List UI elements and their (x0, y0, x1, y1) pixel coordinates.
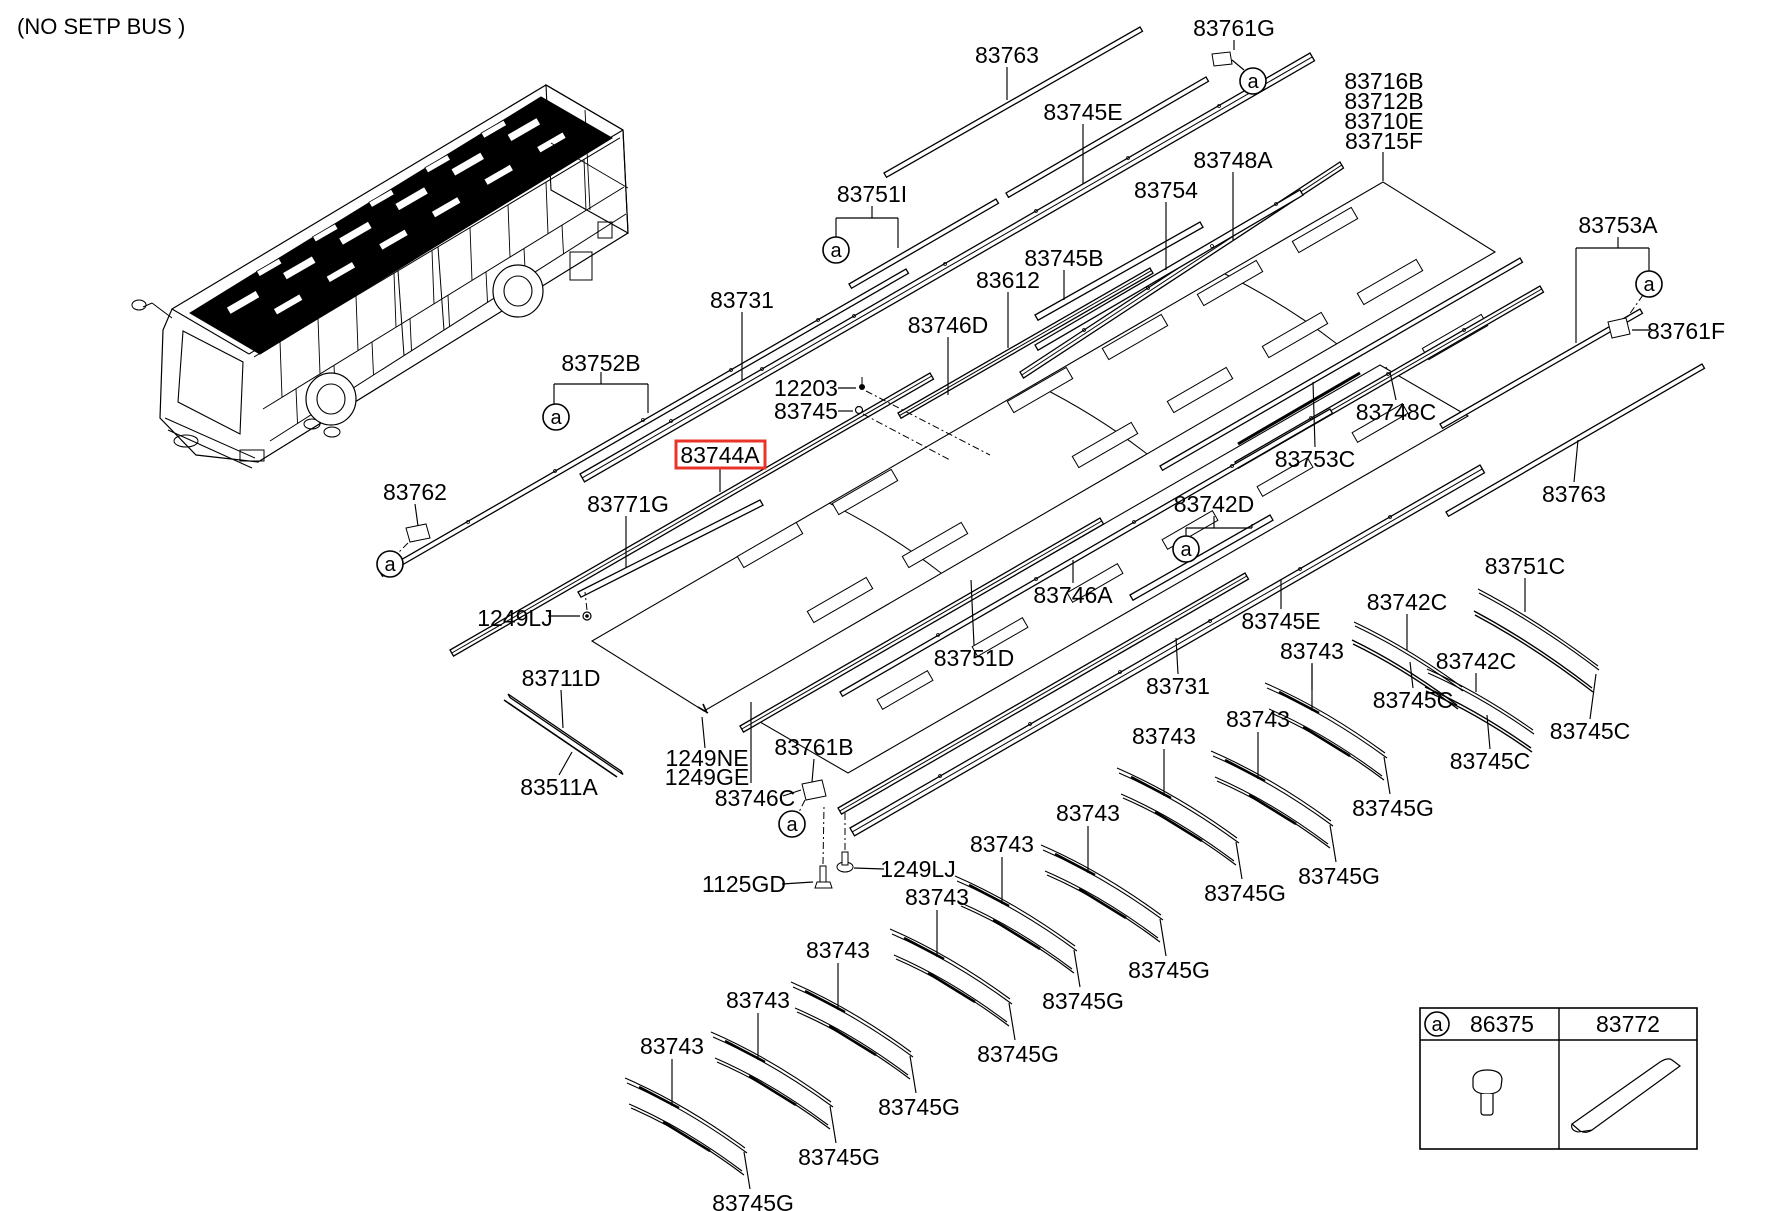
svg-text:83745C: 83745C (1373, 687, 1454, 713)
svg-text:83743: 83743 (970, 831, 1034, 857)
svg-text:83511A: 83511A (520, 774, 598, 800)
svg-text:83752B: 83752B (561, 350, 640, 376)
svg-text:a: a (1643, 274, 1655, 296)
svg-text:83745C: 83745C (1550, 718, 1631, 744)
svg-text:a: a (1180, 539, 1192, 561)
svg-text:a: a (384, 554, 396, 576)
svg-text:83731: 83731 (710, 287, 774, 313)
svg-text:83743: 83743 (640, 1033, 704, 1059)
svg-text:83745G: 83745G (1352, 795, 1434, 821)
svg-text:83771G: 83771G (587, 491, 669, 517)
svg-text:83746D: 83746D (908, 312, 989, 338)
svg-text:1249LJ: 1249LJ (477, 605, 552, 631)
svg-text:83743: 83743 (806, 937, 870, 963)
svg-text:83744A: 83744A (680, 442, 760, 468)
svg-text:83751D: 83751D (934, 645, 1015, 671)
svg-text:83731: 83731 (1146, 673, 1210, 699)
svg-text:a: a (786, 814, 798, 836)
svg-text:83745G: 83745G (798, 1144, 880, 1170)
svg-text:83751I: 83751I (837, 181, 907, 207)
svg-text:83762: 83762 (383, 479, 447, 505)
svg-text:83761G: 83761G (1193, 15, 1275, 41)
svg-text:83772: 83772 (1596, 1011, 1660, 1037)
svg-text:83743: 83743 (905, 884, 969, 910)
svg-text:83748C: 83748C (1356, 399, 1437, 425)
svg-text:83743: 83743 (1056, 800, 1120, 826)
svg-text:83746A: 83746A (1033, 582, 1113, 608)
svg-text:a: a (830, 240, 842, 262)
svg-text:1125GD: 1125GD (702, 871, 786, 897)
svg-text:1249LJ: 1249LJ (880, 856, 955, 882)
svg-text:83742C: 83742C (1436, 648, 1517, 674)
svg-text:83748A: 83748A (1193, 147, 1273, 173)
svg-text:83745G: 83745G (1128, 957, 1210, 983)
svg-text:86375: 86375 (1470, 1011, 1534, 1037)
svg-text:83745C: 83745C (1450, 748, 1531, 774)
svg-text:83763: 83763 (1542, 481, 1606, 507)
svg-text:83745G: 83745G (712, 1190, 794, 1211)
svg-text:a: a (1431, 1014, 1443, 1036)
svg-text:83715F: 83715F (1345, 128, 1423, 154)
svg-text:83763: 83763 (975, 42, 1039, 68)
svg-text:83745G: 83745G (1298, 863, 1380, 889)
svg-text:83754: 83754 (1134, 177, 1198, 203)
svg-text:(NO SETP BUS ): (NO SETP BUS ) (17, 14, 185, 39)
svg-text:83745E: 83745E (1043, 99, 1122, 125)
svg-text:83746C: 83746C (715, 785, 796, 811)
svg-text:83745G: 83745G (977, 1041, 1059, 1067)
svg-text:83743: 83743 (1280, 638, 1344, 664)
svg-text:83745G: 83745G (878, 1094, 960, 1120)
svg-text:83753C: 83753C (1275, 446, 1356, 472)
svg-text:83745: 83745 (774, 398, 838, 424)
svg-text:83745G: 83745G (1204, 880, 1286, 906)
svg-text:83743: 83743 (726, 987, 790, 1013)
svg-text:a: a (550, 407, 562, 429)
svg-text:83711D: 83711D (522, 665, 601, 691)
svg-text:83742C: 83742C (1367, 589, 1448, 615)
svg-text:83761F: 83761F (1647, 318, 1725, 344)
svg-text:83745G: 83745G (1042, 988, 1124, 1014)
svg-text:83743: 83743 (1132, 723, 1196, 749)
svg-text:83751C: 83751C (1485, 553, 1566, 579)
svg-text:83745E: 83745E (1241, 608, 1320, 634)
svg-text:83761B: 83761B (774, 734, 853, 760)
svg-text:83742D: 83742D (1174, 491, 1255, 517)
svg-text:a: a (1247, 71, 1259, 93)
svg-text:83753A: 83753A (1578, 212, 1658, 238)
svg-text:83612: 83612 (976, 267, 1040, 293)
svg-text:83743: 83743 (1226, 706, 1290, 732)
